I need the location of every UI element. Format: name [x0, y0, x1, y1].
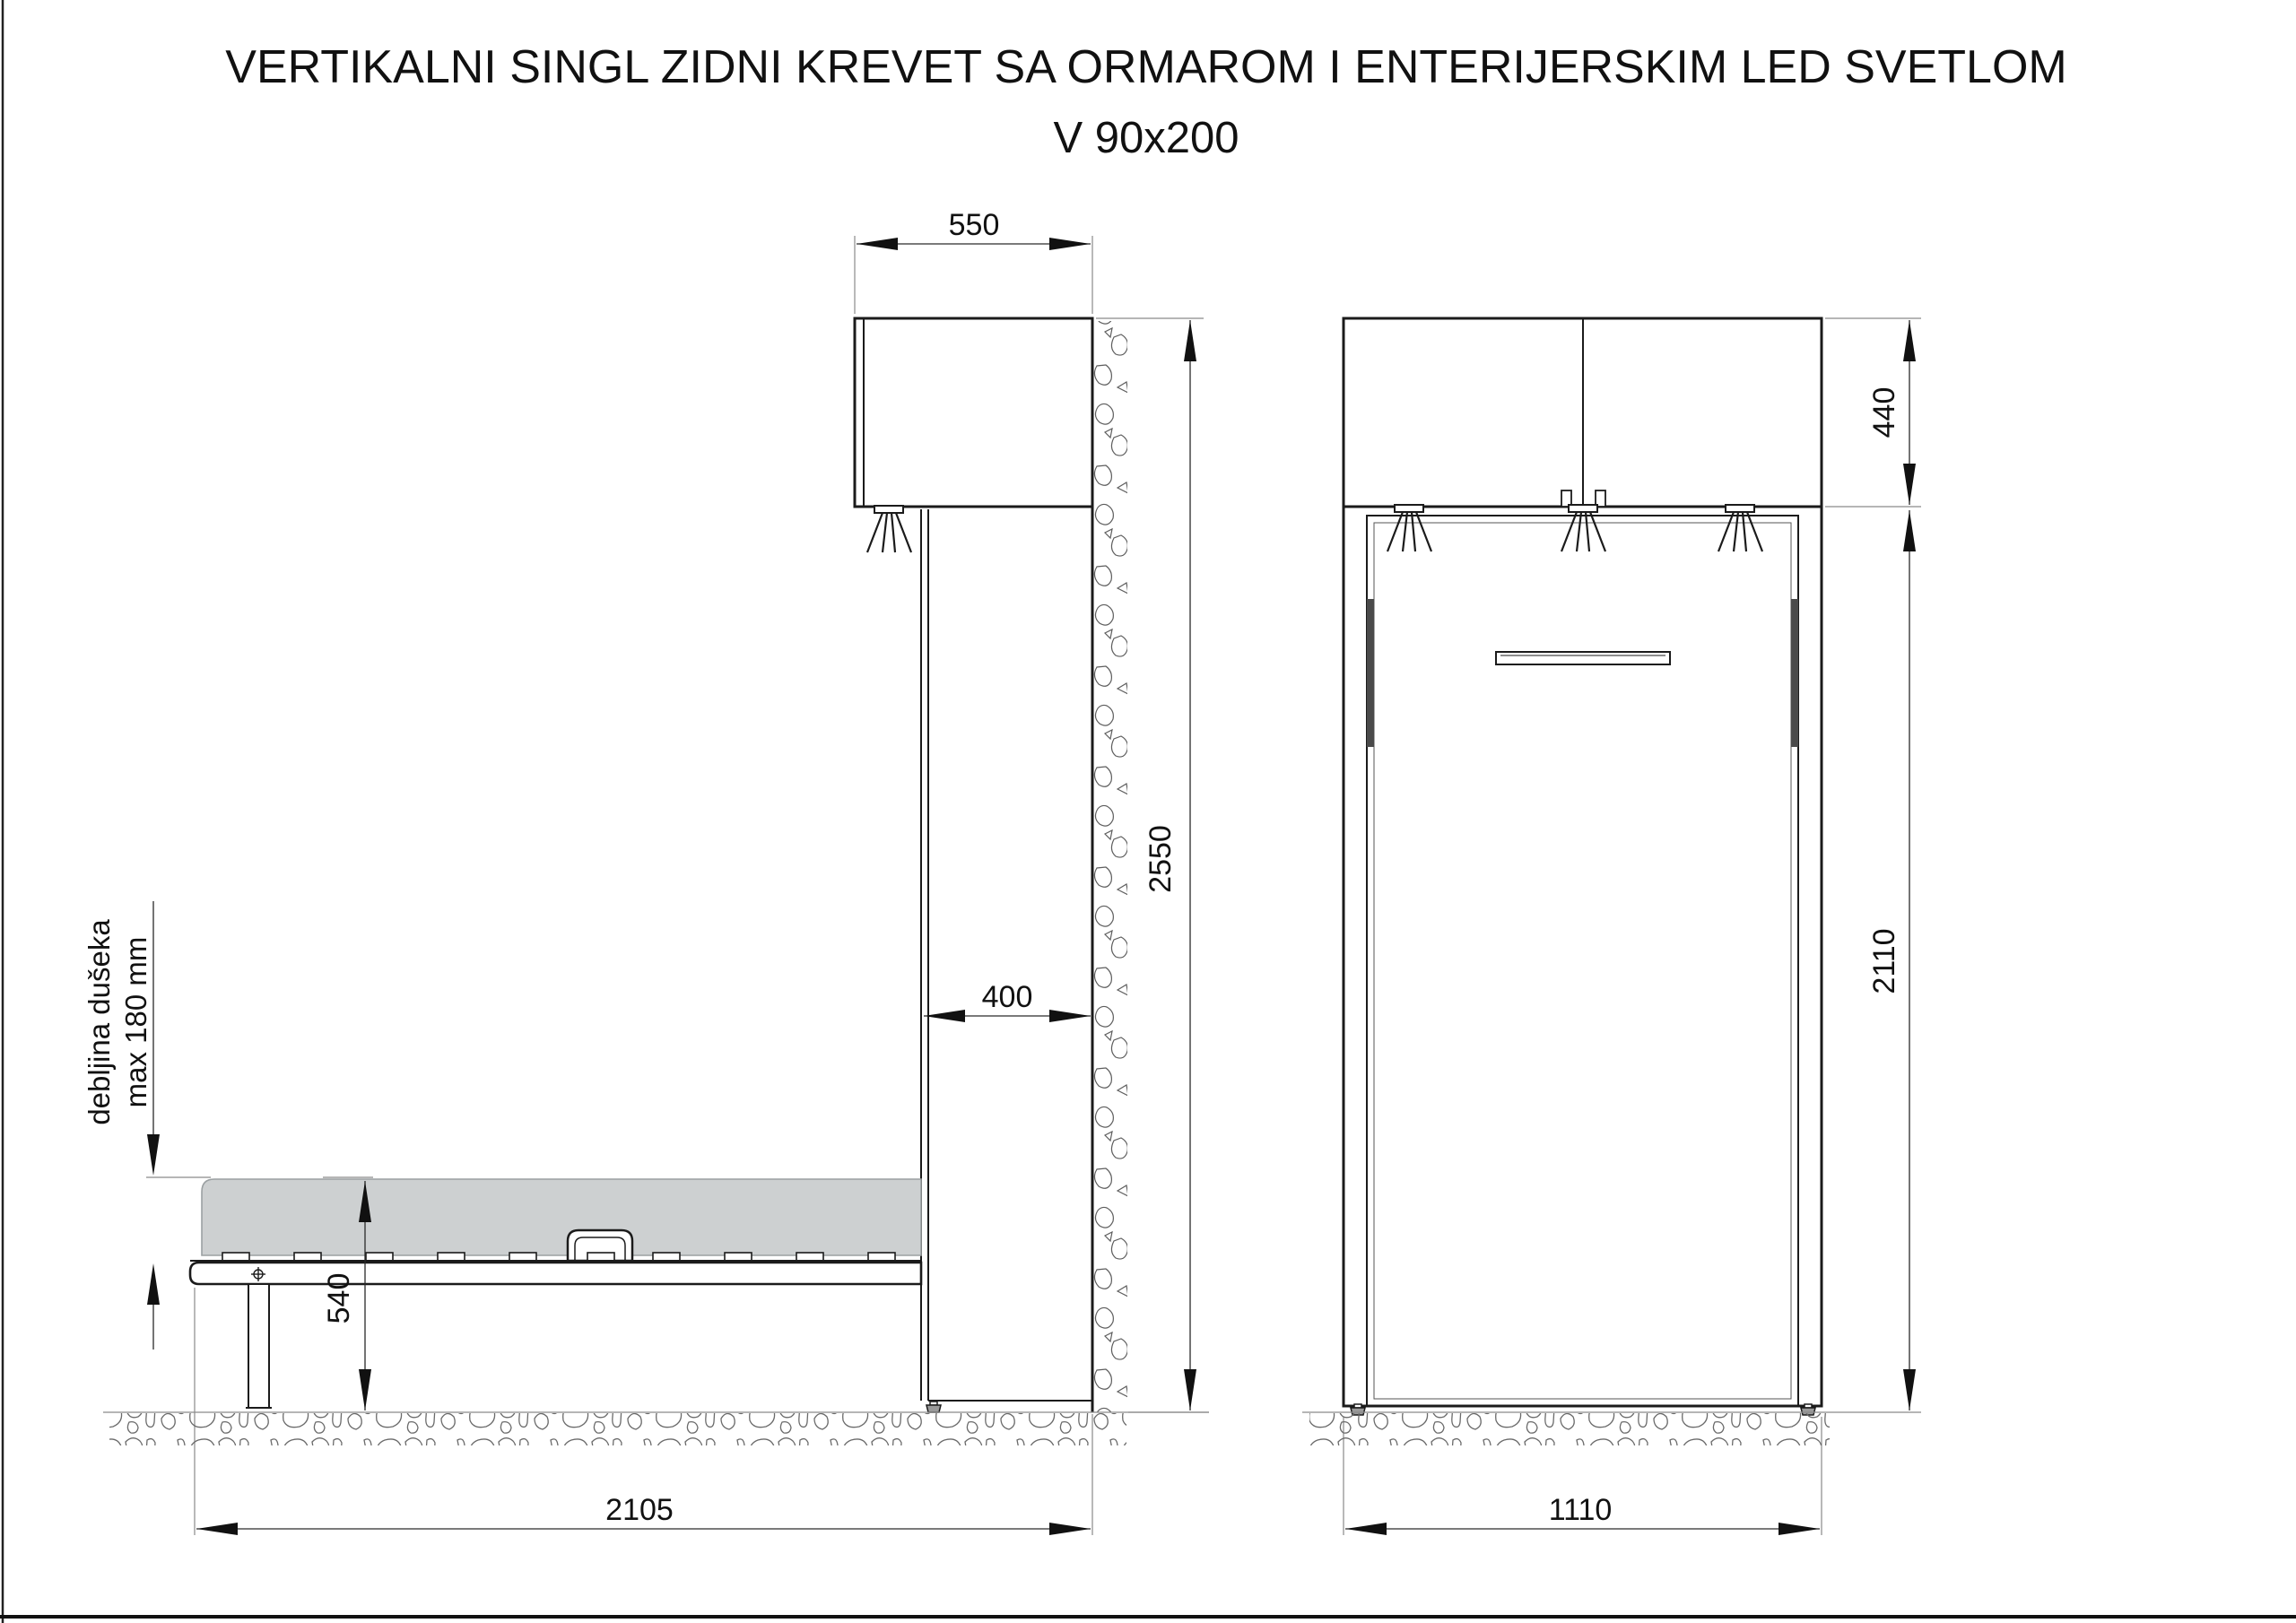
dim-bed-panel-height: 2110	[1867, 510, 1916, 1410]
dim-top-cabinet-height: 440	[1825, 318, 1921, 507]
technical-drawing-page: VERTIKALNI SINGL ZIDNI KREVET SA ORMAROM…	[0, 0, 2296, 1623]
dim-open-depth: 2105	[195, 1288, 1092, 1535]
panel-handle-bar	[1496, 652, 1670, 664]
svg-text:2550: 2550	[1144, 825, 1178, 893]
wardrobe-cabinet-side	[855, 318, 1092, 507]
side-view: 550 2550 400 540	[83, 208, 1209, 1535]
ground	[103, 1412, 1921, 1445]
svg-text:550: 550	[949, 208, 1000, 242]
svg-text:540: 540	[322, 1273, 356, 1324]
mattress-note-line2: max 180 mm	[119, 937, 152, 1108]
svg-text:1110: 1110	[1549, 1493, 1613, 1527]
wardrobe-front	[1344, 318, 1822, 507]
drawing-title: VERTIKALNI SINGL ZIDNI KREVET SA ORMAROM…	[225, 41, 2066, 93]
bed-frame	[190, 1263, 921, 1284]
mattress-note-line1: debljina dušeka	[83, 919, 116, 1125]
mattress	[202, 1179, 921, 1255]
front-view: 440 2110 1110	[1344, 318, 1921, 1535]
svg-text:2105: 2105	[605, 1493, 674, 1527]
drawing-canvas: VERTIKALNI SINGL ZIDNI KREVET SA ORMAROM…	[0, 0, 2296, 1623]
svg-text:440: 440	[1867, 387, 1901, 438]
ground-hatching-left	[109, 1413, 1126, 1445]
drawing-size-label: V 90x200	[1053, 114, 1239, 162]
dim-wardrobe-depth: 550	[855, 208, 1092, 314]
page-frame	[0, 0, 2296, 1623]
svg-text:400: 400	[982, 980, 1033, 1014]
ground-hatching-right	[1309, 1413, 1830, 1445]
svg-text:2110: 2110	[1867, 928, 1901, 994]
wall-hatching	[1093, 321, 1127, 1412]
hinge-icon	[1718, 505, 1762, 551]
hardware-strip-left	[1367, 599, 1374, 747]
hinge-icon	[867, 506, 911, 552]
bed-leg	[246, 1284, 272, 1408]
cabinet-column	[921, 509, 1092, 1401]
hinge-icon	[1561, 505, 1605, 551]
column-foot	[926, 1402, 941, 1412]
hinge-icon	[1387, 505, 1431, 551]
dim-column-depth: 400	[924, 980, 1091, 1022]
title-block: VERTIKALNI SINGL ZIDNI KREVET SA ORMAROM…	[225, 41, 2066, 162]
bed-front-panel	[1367, 516, 1798, 1406]
hardware-strip-right	[1791, 599, 1798, 747]
